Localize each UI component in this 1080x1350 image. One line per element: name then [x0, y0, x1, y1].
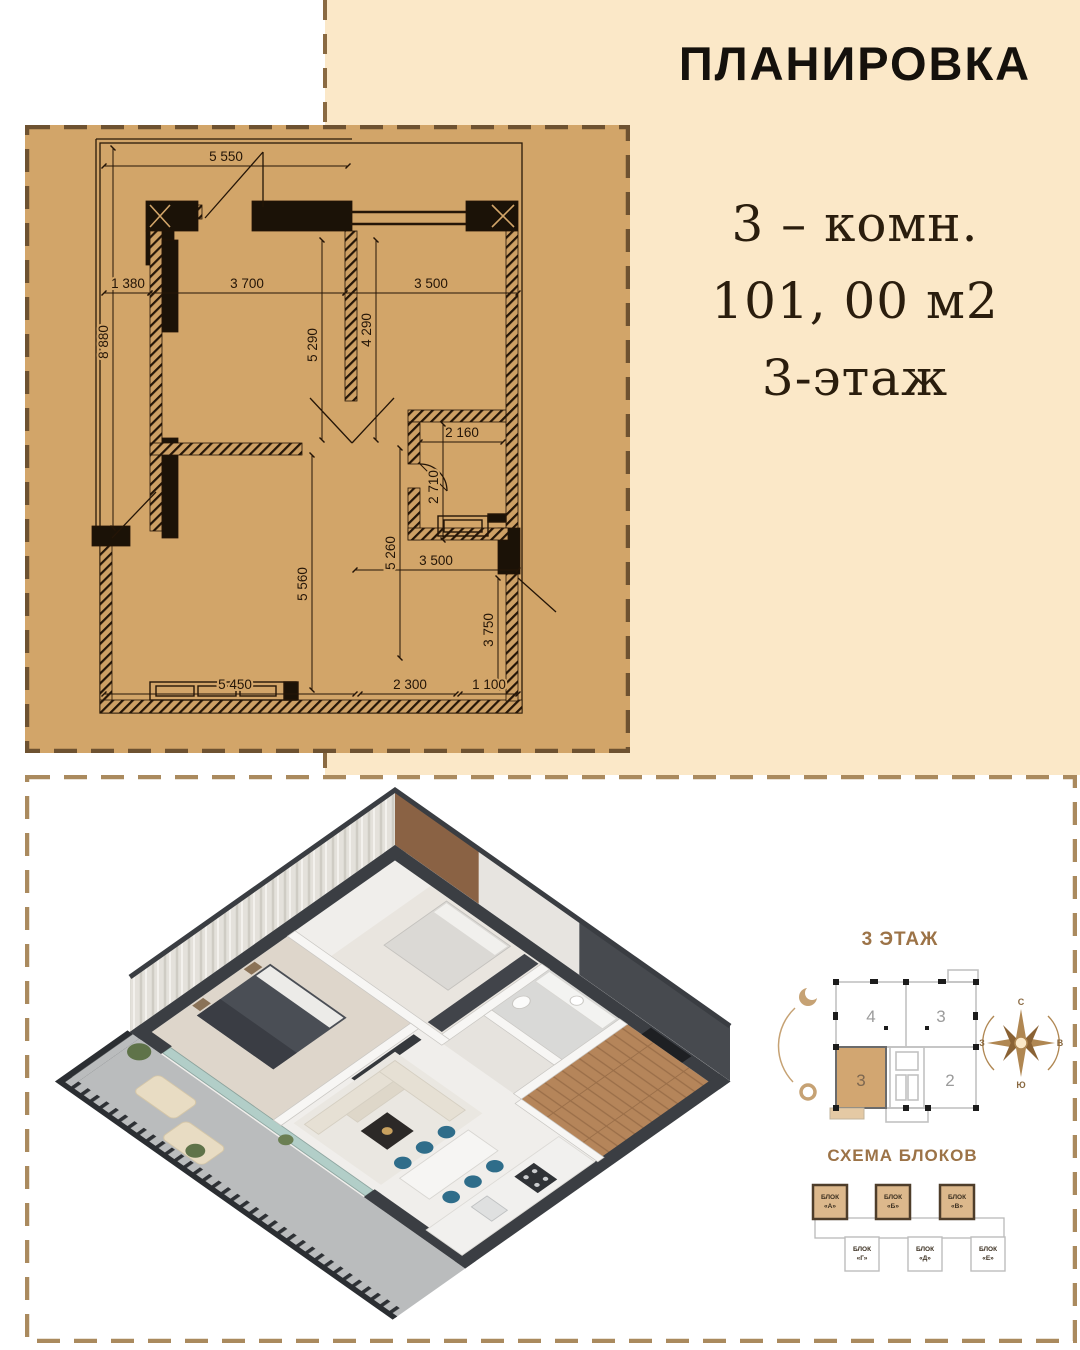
block-letter: «В» — [951, 1203, 963, 1210]
dimension-label: 5 260 — [383, 536, 398, 570]
block-scheme: БЛОК «А» БЛОК «Б» БЛОК «В» БЛОК «Г» БЛОК… — [780, 1175, 1080, 1280]
dimension-label: 8 880 — [96, 325, 111, 359]
dimension-label: 5 560 — [295, 567, 310, 601]
block-label: БЛОК — [884, 1194, 902, 1201]
compass-west: З — [979, 1038, 985, 1048]
apartment-floor: 3-этаж — [640, 340, 1070, 417]
poster-page: ПЛАНИРОВКА 3 – комн. 101, 00 м2 3-этаж — [0, 0, 1080, 1350]
block-letter: «Д» — [919, 1255, 931, 1262]
dimension-label: 5 450 — [218, 677, 252, 692]
compass-south: Ю — [1016, 1080, 1025, 1090]
floor-plan-drawing: 5 550 8 880 1 380 3 700 3 500 5 290 4 29… — [25, 125, 630, 753]
plan-walls — [92, 201, 522, 713]
block-letter: «А» — [824, 1203, 836, 1210]
block-letter: «Б» — [887, 1203, 899, 1210]
block-connector-band — [815, 1218, 1004, 1238]
block-label: БЛОК — [916, 1246, 934, 1253]
compass-north: С — [1018, 997, 1025, 1007]
dimension-label: 5 550 — [209, 149, 243, 164]
block-label: БЛОК — [821, 1194, 839, 1201]
block-label: БЛОК — [853, 1246, 871, 1253]
block-letter: «Г» — [857, 1255, 868, 1262]
apartment-3d-render — [30, 775, 750, 1345]
block-label: БЛОК — [979, 1246, 997, 1253]
dimension-label: 3 500 — [419, 553, 453, 568]
dimension-label: 2 300 — [393, 677, 427, 692]
block-label: БЛОК — [948, 1194, 966, 1201]
dimension-label: 2 710 — [426, 470, 441, 504]
sun-path — [779, 986, 819, 1099]
apartment-rooms: 3 – комн. — [640, 186, 1070, 263]
iso-plan — [60, 845, 731, 1318]
floor-scheme-title: 3 ЭТАЖ — [800, 929, 1000, 951]
dimension-label: 1 380 — [111, 276, 145, 291]
dimension-label: 5 290 — [305, 328, 320, 362]
compass-east: В — [1057, 1038, 1064, 1048]
block-letter: «Е» — [982, 1255, 994, 1262]
floor-scheme: 4 3 3 2 — [765, 955, 1070, 1135]
dimension-label: 2 160 — [445, 425, 479, 440]
compass-icon: С В Ю З — [979, 997, 1064, 1090]
dimension-label: 3 700 — [230, 276, 264, 291]
unit-number: 4 — [866, 1007, 875, 1026]
page-title: ПЛАНИРОВКА — [645, 36, 1065, 91]
unit-number: 2 — [945, 1071, 954, 1090]
blocks-top-row: БЛОК «А» БЛОК «Б» БЛОК «В» — [813, 1185, 974, 1219]
dimension-label: 3 500 — [414, 276, 448, 291]
unit-number: 3 — [936, 1007, 945, 1026]
unit-number-highlighted: 3 — [856, 1071, 865, 1090]
sun-icon — [801, 1085, 815, 1099]
dimension-label: 3 750 — [481, 613, 496, 647]
dimension-label: 4 290 — [359, 313, 374, 347]
apartment-info: 3 – комн. 101, 00 м2 3-этаж — [640, 186, 1070, 417]
plan-windows — [150, 514, 506, 700]
apartment-area: 101, 00 м2 — [640, 263, 1070, 340]
block-scheme-title: СХЕМА БЛОКОВ — [790, 1146, 1015, 1166]
blocks-bottom-row: БЛОК «Г» БЛОК «Д» БЛОК «Е» — [845, 1237, 1005, 1271]
dimension-label: 1 100 — [472, 677, 506, 692]
